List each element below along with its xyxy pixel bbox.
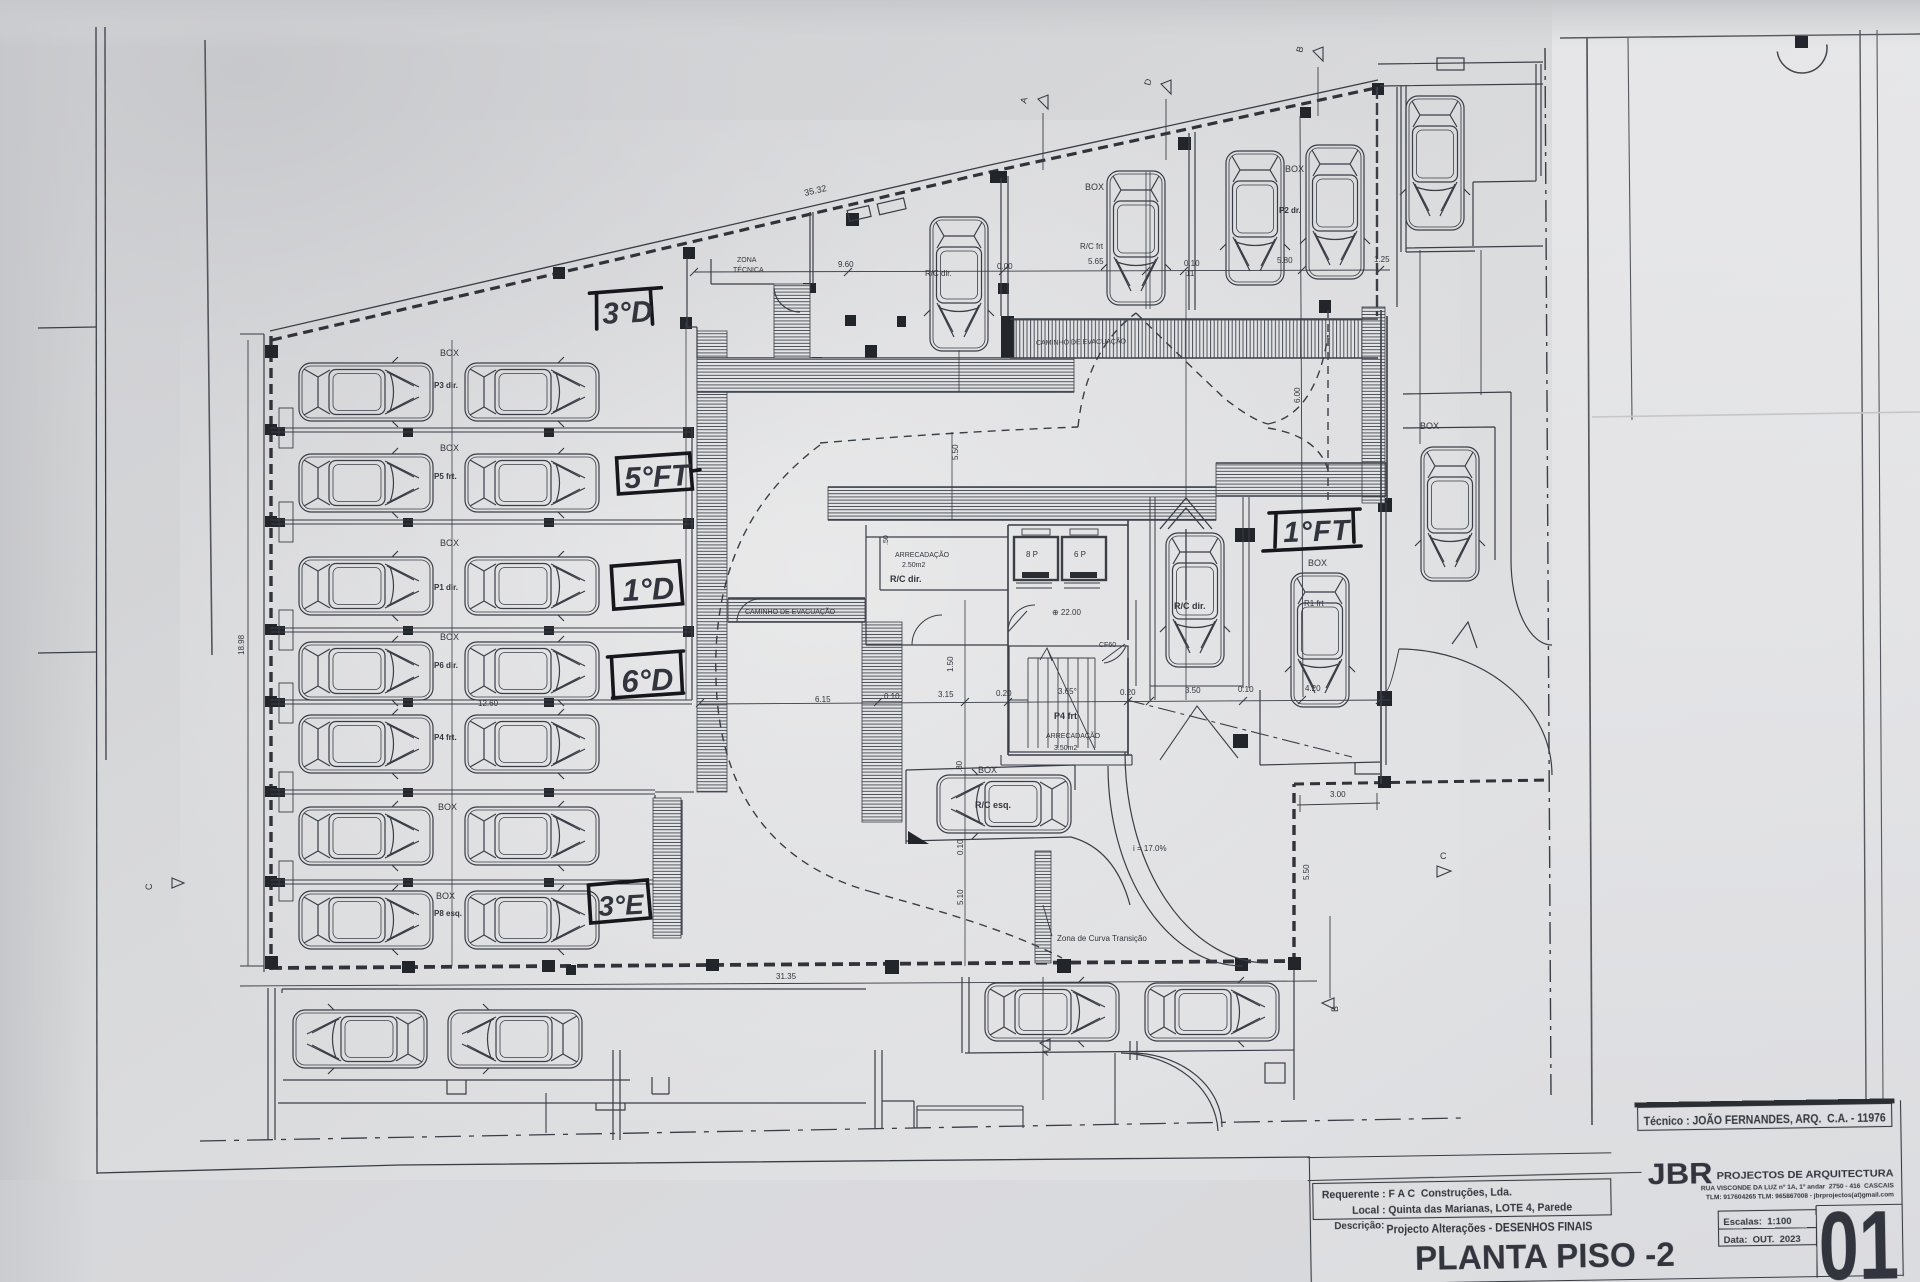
- svg-text:Zona de Curva Transição: Zona de Curva Transição: [1057, 934, 1147, 943]
- svg-text:3.50: 3.50: [1185, 686, 1201, 695]
- svg-text:0.10: 0.10: [1184, 259, 1200, 268]
- svg-text:Descrição:: Descrição:: [1334, 1220, 1384, 1232]
- svg-text:11: 11: [1186, 269, 1195, 278]
- svg-text:i = 17.0%: i = 17.0%: [1133, 844, 1167, 853]
- svg-text:Data: OUT. 2023: Data: OUT. 2023: [1724, 1234, 1801, 1246]
- svg-text:R/C dir.: R/C dir.: [890, 574, 922, 584]
- svg-text:0.00: 0.00: [997, 262, 1013, 271]
- svg-text:CF60: CF60: [1099, 642, 1116, 649]
- svg-text:3.65°: 3.65°: [1058, 687, 1077, 696]
- svg-text:C: C: [1440, 851, 1447, 861]
- svg-text:3°E: 3°E: [598, 889, 646, 922]
- svg-text:0.10: 0.10: [884, 692, 900, 701]
- svg-text:Escalas: 1:100: Escalas: 1:100: [1723, 1216, 1791, 1228]
- svg-text:6 P: 6 P: [1074, 550, 1086, 559]
- svg-text:P4 frt.: P4 frt.: [434, 733, 457, 742]
- svg-text:0.20: 0.20: [1120, 688, 1136, 697]
- svg-text:5.80: 5.80: [1277, 256, 1293, 265]
- svg-text:0.10: 0.10: [1238, 685, 1254, 694]
- svg-text:CAMINHO DE EVACUAÇÃO: CAMINHO DE EVACUAÇÃO: [745, 607, 836, 616]
- svg-text:01: 01: [1818, 1190, 1900, 1282]
- svg-text:BOX: BOX: [1085, 182, 1104, 192]
- svg-text:B: B: [1330, 1006, 1340, 1012]
- svg-text:ARRECADAÇÃO: ARRECADAÇÃO: [1046, 731, 1101, 740]
- svg-text:BOX: BOX: [978, 765, 997, 775]
- svg-text:BOX: BOX: [440, 443, 459, 453]
- svg-text:8 P: 8 P: [1026, 550, 1038, 559]
- svg-text:1.25: 1.25: [1374, 255, 1390, 264]
- svg-text:5°FT: 5°FT: [623, 459, 693, 496]
- svg-text:3°D: 3°D: [601, 295, 653, 331]
- svg-text:BOX: BOX: [440, 632, 459, 642]
- svg-text:1.50: 1.50: [946, 656, 955, 672]
- svg-text:C: C: [144, 883, 154, 890]
- svg-text:R/C dir.: R/C dir.: [1174, 601, 1206, 611]
- svg-text:.50: .50: [883, 535, 890, 545]
- svg-text:12.60: 12.60: [478, 699, 499, 708]
- svg-text:P5 frt.: P5 frt.: [434, 472, 457, 481]
- svg-text:6.00: 6.00: [1293, 387, 1302, 403]
- svg-text:ZONA: ZONA: [737, 257, 757, 264]
- svg-text:R1 frt: R1 frt: [1304, 599, 1324, 608]
- svg-text:.80: .80: [955, 760, 964, 772]
- svg-text:P8 esq.: P8 esq.: [434, 909, 462, 918]
- svg-text:18.98: 18.98: [237, 634, 246, 655]
- svg-text:BOX: BOX: [1420, 421, 1439, 431]
- svg-text:P3 dir.: P3 dir.: [434, 381, 458, 390]
- svg-text:P6 dir.: P6 dir.: [434, 661, 458, 670]
- svg-text:ARRECADAÇÃO: ARRECADAÇÃO: [895, 550, 950, 559]
- svg-text:R/C dir.: R/C dir.: [925, 269, 952, 278]
- svg-text:BOX: BOX: [436, 891, 455, 901]
- svg-text:3.15: 3.15: [938, 690, 954, 699]
- svg-text:TÉCNICA: TÉCNICA: [733, 265, 764, 274]
- svg-text:5.50: 5.50: [1302, 864, 1311, 880]
- svg-text:2.50m2: 2.50m2: [902, 562, 925, 569]
- svg-text:6.15: 6.15: [815, 695, 831, 704]
- svg-text:1°FT: 1°FT: [1283, 515, 1353, 549]
- svg-text:R/C frt: R/C frt: [1080, 242, 1104, 251]
- svg-text:4.20: 4.20: [1305, 684, 1321, 693]
- svg-text:0.10: 0.10: [956, 839, 965, 855]
- svg-text:BOX: BOX: [1308, 558, 1327, 568]
- svg-text:3.50m2: 3.50m2: [1054, 745, 1077, 752]
- svg-text:31.35: 31.35: [776, 972, 797, 981]
- svg-text:P2 dr.: P2 dr.: [1279, 206, 1301, 215]
- svg-text:5.50: 5.50: [951, 444, 960, 460]
- svg-text:0.20: 0.20: [996, 689, 1012, 698]
- svg-text:PLANTA PISO -2: PLANTA PISO -2: [1415, 1236, 1676, 1278]
- svg-text:P4 frt: P4 frt: [1054, 711, 1077, 721]
- svg-text:BOX: BOX: [438, 802, 457, 812]
- svg-text:⊕ 22.00: ⊕ 22.00: [1052, 608, 1081, 617]
- svg-text:BOX: BOX: [440, 538, 459, 548]
- svg-text:BOX: BOX: [1285, 164, 1304, 174]
- svg-text:9.60: 9.60: [838, 260, 854, 269]
- svg-text:3.00: 3.00: [1330, 790, 1346, 799]
- svg-text:R/C esq.: R/C esq.: [975, 800, 1011, 810]
- svg-text:BOX: BOX: [440, 348, 459, 358]
- svg-text:P1 dir.: P1 dir.: [434, 583, 458, 592]
- svg-text:1°D: 1°D: [621, 570, 675, 608]
- svg-text:6°D: 6°D: [620, 662, 674, 700]
- svg-text:5.65: 5.65: [1088, 257, 1104, 266]
- svg-text:5.10: 5.10: [956, 889, 965, 905]
